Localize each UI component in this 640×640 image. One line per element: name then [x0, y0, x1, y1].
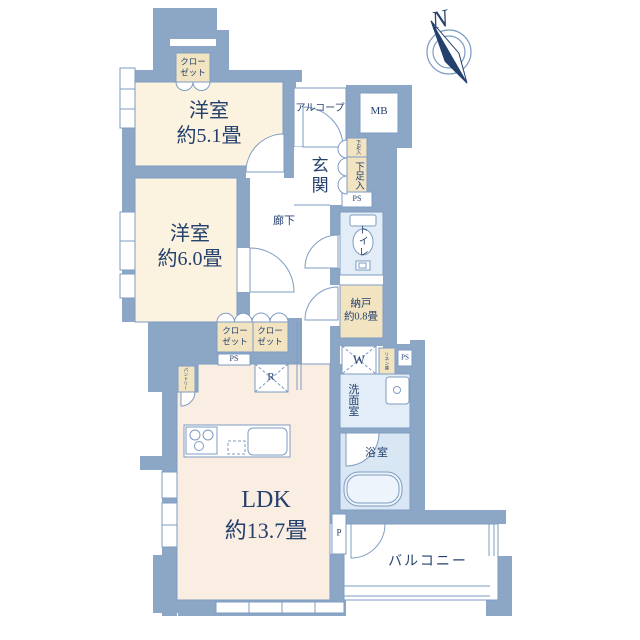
meter-box-label: MB: [370, 105, 387, 119]
ps1-label: PS: [353, 194, 362, 204]
alcove-label: アルコープ: [295, 103, 344, 116]
closet2-label: クローゼット: [222, 325, 248, 346]
entrance-label: 玄関: [307, 156, 328, 196]
ps3-label: PS: [230, 354, 239, 364]
bathroom-label: 浴室: [365, 447, 389, 461]
washroom-label: 洗面室: [345, 384, 359, 417]
kitchen-counter: [184, 425, 290, 457]
storage-room-label: 納戸約0.8畳: [344, 298, 378, 323]
linen-label: リネン庫: [384, 352, 390, 370]
bathtub: [344, 472, 402, 506]
washer-label: W: [353, 352, 365, 368]
closet3-label: クローゼット: [257, 325, 283, 346]
shoe-cabinet-small-label: 下足入: [354, 140, 360, 155]
ldk-label: LDK約13.7畳: [225, 484, 308, 546]
shoe-cabinet-label: 下足入: [351, 162, 363, 191]
toilet-door: [305, 235, 338, 268]
toilet-label: トイレ: [355, 225, 368, 258]
floor-plan: クローゼット 洋室約5.1畳 洋室約6.0畳 LDK約13.7畳 アルコープ M…: [0, 0, 640, 640]
closet1-label: クローゼット: [180, 56, 206, 77]
balcony-label: バルコニー: [388, 553, 468, 571]
bedroom2-label: 洋室約6.0畳: [158, 222, 223, 272]
ps2-label: PS: [401, 354, 409, 363]
washbasin: [386, 377, 409, 404]
floor-plan-drawing: [0, 0, 640, 640]
pantry-label: パントリー: [183, 368, 189, 391]
bedroom1-label: 洋室約5.1畳: [177, 99, 242, 149]
bedroom2-door: [250, 248, 294, 292]
refrigerator-label: R: [267, 371, 274, 385]
pipe-label: P: [336, 527, 341, 538]
ldk-area: [177, 364, 330, 600]
kitchen-sink: [248, 428, 287, 455]
storage-room-door: [305, 287, 338, 320]
hallway-label: 廊下: [273, 215, 295, 229]
